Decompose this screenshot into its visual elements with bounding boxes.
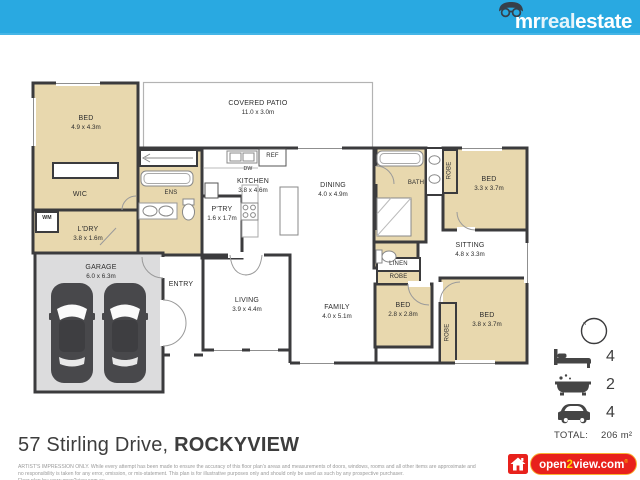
bed-icon xyxy=(553,347,593,373)
open2view-logo: open2view.com® xyxy=(508,453,637,475)
total-label: TOTAL: xyxy=(554,430,588,441)
label-wm: WM xyxy=(36,216,58,222)
label-ldry: L'DRY3.8 x 1.6m xyxy=(48,226,128,243)
address-suburb: ROCKYVIEW xyxy=(174,434,299,456)
label-dw: DW xyxy=(238,167,258,173)
label-ref: REF xyxy=(259,153,286,160)
label-covered-patio: COVERED PATIO11.0 x 3.0m xyxy=(198,100,318,117)
total-area-value: 206 m² xyxy=(601,430,632,441)
bath-count: 2 xyxy=(606,376,615,394)
label-ens: ENS xyxy=(143,190,199,197)
label-dining: DINING4.0 x 4.9m xyxy=(293,182,373,199)
bath-icon xyxy=(553,372,593,401)
bed-count: 4 xyxy=(606,348,615,366)
open2view-house-icon xyxy=(508,454,528,474)
property-address: 57 Stirling Drive, ROCKYVIEW xyxy=(18,434,299,457)
label-bed4: BED3.8 x 3.7m xyxy=(447,312,527,329)
label-bed1: BED4.9 x 4.3m xyxy=(46,115,126,132)
car-top-view-2 xyxy=(102,283,148,383)
label-living: LIVING3.9 x 4.4m xyxy=(207,297,287,314)
car-count: 4 xyxy=(606,404,615,422)
floorplan-page: mrrealestate xyxy=(0,0,640,480)
open2view-wordmark: open2view.com® xyxy=(530,453,637,475)
car-icon xyxy=(556,402,592,430)
label-garage: GARAGE6.0 x 6.3m xyxy=(56,264,146,281)
label-entry: ENTRY xyxy=(151,281,211,290)
label-sitting: SITTING4.8 x 3.3m xyxy=(430,242,510,259)
label-ptry: P'TRY1.6 x 1.7m xyxy=(192,206,252,223)
disclaimer-text: ARTIST'S IMPRESSION ONLY. While every at… xyxy=(18,464,480,477)
label-linen: LINEN xyxy=(377,261,420,268)
svg-text:N: N xyxy=(583,321,586,326)
label-bath: BATH xyxy=(386,180,446,187)
label-kitchen: KITCHEN3.8 x 4.6m xyxy=(213,178,293,195)
label-bed2: BED3.3 x 3.7m xyxy=(449,176,529,193)
label-robe2: ROBE xyxy=(377,274,420,281)
address-street: 57 Stirling Drive, xyxy=(18,434,174,456)
label-bed3: BED2.8 x 2.8m xyxy=(363,302,443,319)
label-wic: WIC xyxy=(45,191,115,200)
car-top-view-1 xyxy=(49,283,95,383)
compass-icon: N xyxy=(582,319,607,344)
